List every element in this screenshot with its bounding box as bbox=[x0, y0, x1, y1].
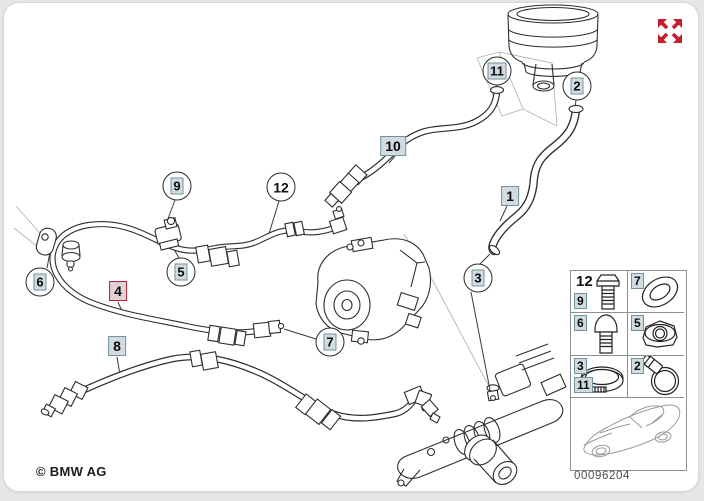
steering-rack-drawing bbox=[397, 344, 566, 489]
callout-7-label: 7 bbox=[323, 334, 336, 351]
diagram-number: 00096204 bbox=[574, 470, 630, 482]
hose-8-return-line bbox=[40, 350, 440, 430]
callout-4-selected[interactable]: 4 bbox=[109, 281, 127, 301]
callout-9[interactable]: 9 bbox=[163, 172, 192, 201]
callout-1[interactable]: 1 bbox=[501, 186, 519, 206]
hose-1-suction-line bbox=[488, 105, 583, 256]
callout-11[interactable]: 11 bbox=[483, 57, 512, 86]
callout-2-label: 2 bbox=[570, 78, 583, 95]
hose-10-return-line bbox=[325, 87, 504, 207]
callout-12: 12 bbox=[267, 173, 296, 202]
callout-11-label: 11 bbox=[487, 63, 507, 80]
legend-label-2[interactable]: 2 bbox=[631, 358, 644, 374]
legend-label-12: 12 bbox=[576, 273, 593, 290]
legend-cell-nut-5: 5 bbox=[628, 313, 684, 356]
callout-10[interactable]: 10 bbox=[380, 136, 406, 156]
legend-cell-clamp-3-11: 3 11 bbox=[571, 356, 628, 398]
callout-5-label: 5 bbox=[174, 264, 187, 281]
callout-9-label: 9 bbox=[170, 178, 183, 195]
parts-catalog-page: { "diagram": { "copyright": "© BMW AG", … bbox=[0, 0, 704, 501]
callout-10-label: 10 bbox=[380, 136, 406, 156]
expand-button[interactable] bbox=[656, 17, 684, 45]
callout-3[interactable]: 3 bbox=[464, 264, 493, 293]
expand-icon bbox=[656, 17, 684, 45]
legend-cell-oring-7: 7 bbox=[628, 271, 684, 313]
callout-5[interactable]: 5 bbox=[167, 258, 196, 287]
legend-label-5[interactable]: 5 bbox=[631, 315, 644, 331]
car-silhouette-icon bbox=[576, 401, 682, 467]
copyright-text: © BMW AG bbox=[36, 464, 107, 479]
legend-label-3[interactable]: 3 bbox=[574, 358, 587, 374]
callout-2[interactable]: 2 bbox=[563, 72, 592, 101]
callout-7[interactable]: 7 bbox=[316, 328, 345, 357]
legend-cell-clamp-2: 2 bbox=[628, 356, 684, 398]
legend-cell-bolt-12-9: 12 9 bbox=[571, 271, 628, 313]
callout-1-label: 1 bbox=[501, 186, 519, 206]
callout-8[interactable]: 8 bbox=[108, 336, 126, 356]
legend-cell-bolt-6: 6 bbox=[571, 313, 628, 356]
legend-label-6[interactable]: 6 bbox=[574, 315, 587, 331]
legend-label-9[interactable]: 9 bbox=[574, 293, 587, 309]
vehicle-thumbnail-cell bbox=[571, 398, 684, 468]
legend-label-11[interactable]: 11 bbox=[574, 377, 593, 393]
callout-6[interactable]: 6 bbox=[26, 268, 55, 297]
callout-4-label: 4 bbox=[109, 281, 127, 301]
legend-label-7[interactable]: 7 bbox=[631, 273, 644, 289]
fasteners-legend: 12 9 7 6 5 bbox=[570, 270, 687, 471]
callout-3-label: 3 bbox=[471, 270, 484, 287]
callout-6-label: 6 bbox=[33, 274, 46, 291]
callout-8-label: 8 bbox=[108, 336, 126, 356]
callout-12-label: 12 bbox=[273, 179, 289, 195]
construction-lines bbox=[14, 52, 557, 390]
